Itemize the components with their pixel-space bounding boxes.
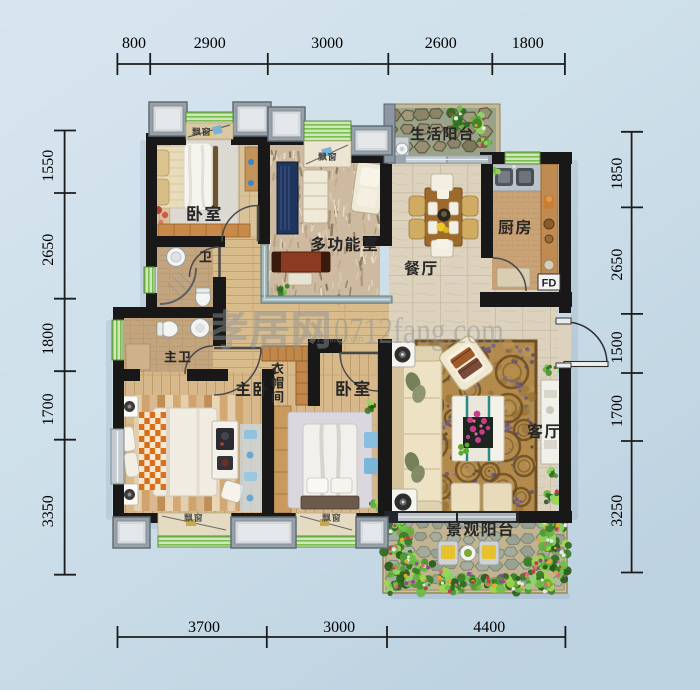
svg-text:FD: FD [542, 278, 557, 290]
svg-text:1700: 1700 [40, 393, 57, 425]
svg-text:2600: 2600 [425, 35, 457, 52]
svg-text:3250: 3250 [609, 495, 626, 527]
svg-text:1700: 1700 [609, 395, 626, 427]
svg-text:3700: 3700 [188, 619, 220, 636]
svg-text:1500: 1500 [609, 331, 626, 363]
svg-text:2650: 2650 [40, 234, 57, 266]
svg-text:1800: 1800 [512, 35, 544, 52]
svg-text:1550: 1550 [40, 150, 57, 182]
svg-text:1850: 1850 [609, 158, 626, 190]
svg-text:1800: 1800 [40, 323, 57, 355]
svg-text:2650: 2650 [609, 249, 626, 281]
svg-text:0712fang.com: 0712fang.com [334, 311, 504, 352]
svg-text:800: 800 [122, 35, 146, 52]
svg-text:4400: 4400 [473, 619, 505, 636]
svg-text:0712fang.com: 0712fang.com [306, 334, 364, 345]
svg-text:2900: 2900 [194, 35, 226, 52]
svg-text:3000: 3000 [311, 35, 343, 52]
svg-text:3000: 3000 [323, 619, 355, 636]
svg-text:3350: 3350 [40, 495, 57, 527]
